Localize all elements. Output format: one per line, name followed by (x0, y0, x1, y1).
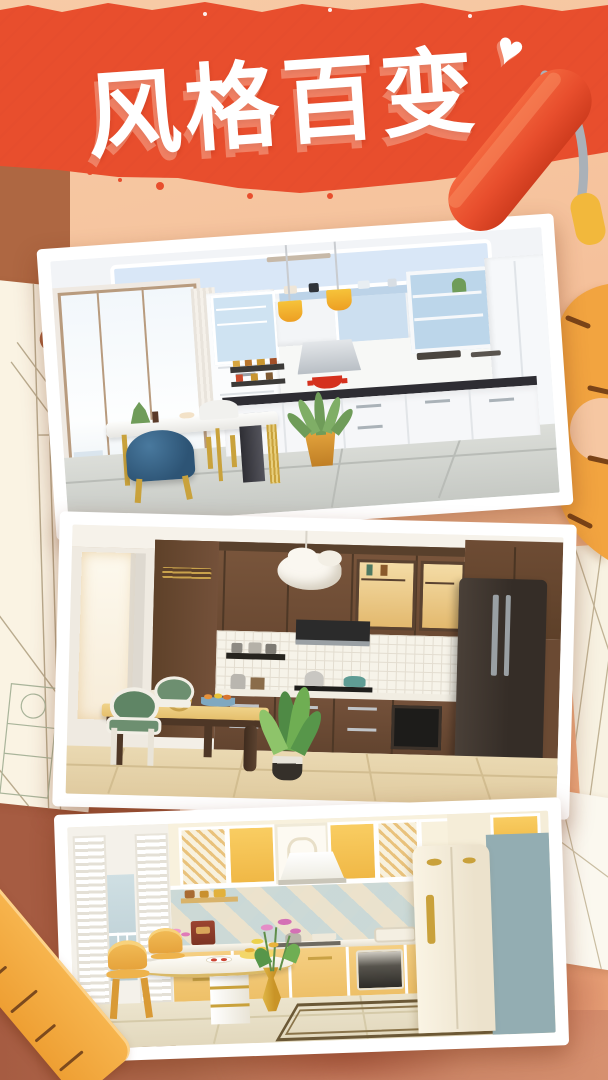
photo-modern-white-kitchen (50, 227, 559, 527)
photo-card-classic-walnut-kitchen (52, 511, 577, 819)
photo-classic-walnut-kitchen (66, 525, 564, 807)
paint-roller-icon (395, 35, 608, 265)
photo-retro-yellow-kitchen (67, 811, 555, 1050)
photo-card-retro-yellow-kitchen (54, 797, 569, 1063)
promo-screenshot: 风格百变 ♥ (0, 0, 608, 1080)
